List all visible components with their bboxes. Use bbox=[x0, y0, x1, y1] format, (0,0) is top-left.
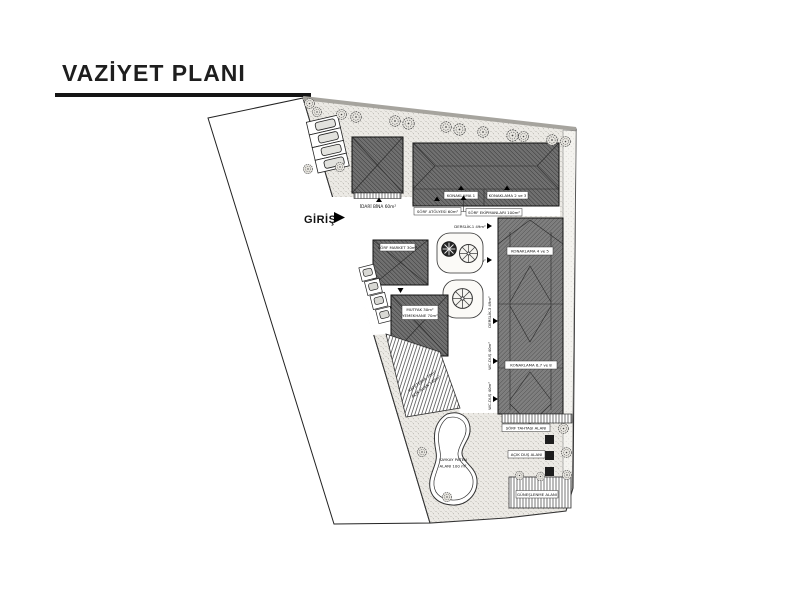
derslik-1-label: DERSLİK-1 49m² bbox=[454, 224, 486, 229]
entrance-label: GİRİŞ bbox=[304, 213, 336, 226]
konaklama-4-5-label: KONAKLAMA 4 ve 5 bbox=[511, 249, 549, 254]
derslik-3-label: DERSLİK-3 49m² bbox=[487, 296, 492, 328]
sorf-atolyesi-label: SÖRF ATÖLYESİ 60m² bbox=[417, 209, 459, 214]
site-plan-drawing: GİRİŞ İDARİ BİNA 60m² bbox=[0, 0, 800, 600]
mutfak-label: MUTFAK 30m² bbox=[406, 307, 434, 312]
building-konaklama-north: KONAKLAMA 1 KONAKLAMA 2 ve 3 SÖRF ATÖLYE… bbox=[413, 143, 559, 216]
idari-bina-label: İDARİ BİNA 60m² bbox=[360, 203, 396, 210]
konaklama-1-label: KONAKLAMA 1 bbox=[447, 193, 476, 198]
konaklama-2-3-label: KONAKLAMA 2 ve 3 bbox=[489, 193, 527, 198]
building-sorf-market: SÖRF MARKET 30m² bbox=[373, 240, 428, 293]
east-path-strip bbox=[563, 130, 576, 489]
umbrella-icon bbox=[459, 244, 477, 262]
sorf-ekipmanlari-label: SÖRF EKİPMANLARI 100m² bbox=[468, 210, 520, 215]
sunbathing-deck: GÜNEŞLENME ALANI bbox=[509, 477, 571, 508]
sorf-market-label: SÖRF MARKET 30m² bbox=[378, 245, 418, 250]
acik-dus-label: AÇIK DUŞ ALANI bbox=[511, 452, 542, 457]
umbrella-icon bbox=[453, 289, 473, 309]
guneslenme-label: GÜNEŞLENME ALANI bbox=[517, 492, 557, 497]
building-konaklama-east: KONAKLAMA 4 ve 5 KONAKLAMA 6,7 ve 8 bbox=[498, 218, 563, 424]
konaklama-6-7-8-label: KONAKLAMA 6,7 ve 8 bbox=[510, 363, 552, 368]
kaykay-label-2: ALANI 100 m² bbox=[440, 464, 467, 469]
dark-tree-icon bbox=[442, 242, 457, 257]
sorf-tahtasi-label: SÖRF TAHTASI ALANI bbox=[506, 425, 547, 430]
site-plan-sheet: VAZİYET PLANI bbox=[0, 0, 800, 600]
wc-dus-label-2: WC-DUŞ 40m² bbox=[487, 382, 492, 410]
yemekhane-label: YEMEKHANE 70m² bbox=[402, 313, 438, 318]
wc-dus-label-1: WC-DUŞ 40m² bbox=[487, 342, 492, 370]
idari-terrace bbox=[354, 193, 401, 199]
kaykay-label-1: KAYKAY PATEN bbox=[439, 457, 467, 462]
